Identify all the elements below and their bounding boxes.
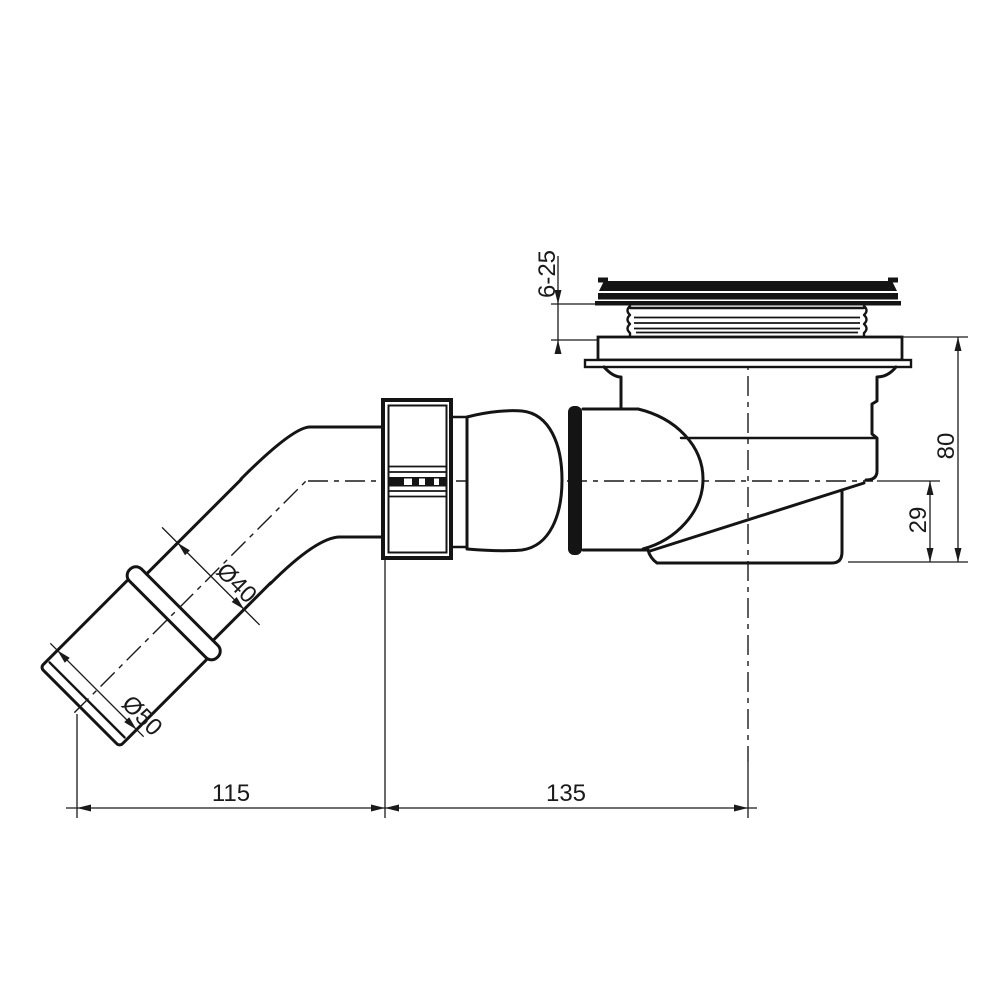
drawing-sheet: Ø40 Ø50 (0, 0, 1000, 1000)
dim-cap-adjust: 6-25 (534, 250, 598, 354)
trap-dome (451, 411, 562, 551)
bottom-cup (648, 491, 842, 563)
dome-body (467, 411, 562, 551)
threaded-neck (628, 306, 867, 336)
total-height-label: 80 (933, 433, 960, 460)
socket-bell-curve (638, 409, 703, 549)
inlet-offset-label: 115 (212, 780, 250, 807)
flange-lip (585, 360, 911, 367)
cap-lip (595, 301, 901, 306)
elbow-upper-edge (241, 427, 383, 479)
waste-cover-cap (595, 278, 901, 306)
body-offset-label: 135 (546, 780, 586, 807)
union-nut (383, 400, 451, 558)
body-left-wall (604, 367, 621, 409)
pipe-axis-centerline (74, 480, 307, 713)
seal-ring (568, 406, 582, 555)
cap-adjust-label: 6-25 (534, 250, 561, 298)
outlet-height-label: 29 (905, 507, 932, 534)
dim-outlet-height: 29 (877, 481, 940, 562)
outlet-connection (583, 409, 703, 550)
body-right-wall (866, 367, 896, 480)
clamping-flange (598, 337, 902, 360)
sloped-bottom-edge (650, 483, 864, 551)
thread-right-edge (864, 306, 867, 336)
cap-top-disc (599, 281, 897, 291)
technical-drawing: Ø40 Ø50 (0, 0, 1000, 1000)
elbow-lower-edge (270, 537, 383, 584)
thread-left-edge (628, 306, 631, 336)
elbow-bend (241, 427, 383, 584)
